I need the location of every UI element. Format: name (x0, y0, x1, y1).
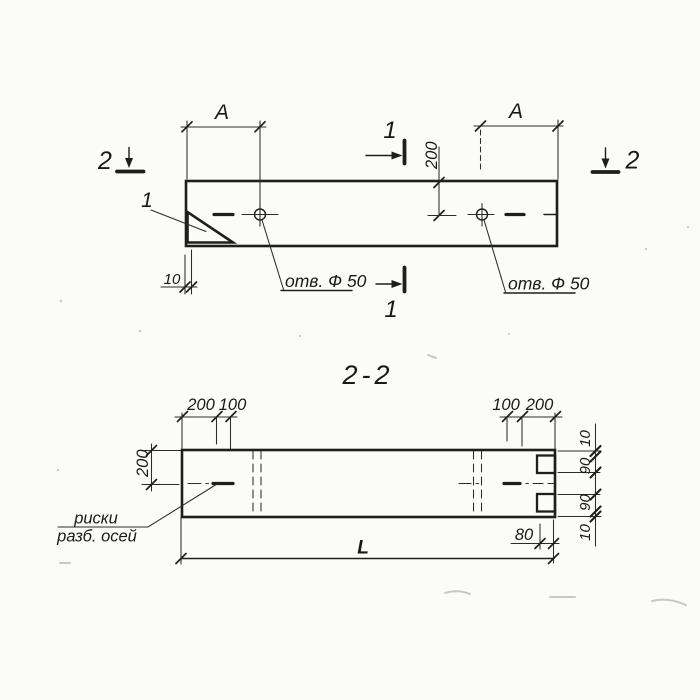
marker-1-bottom-label: 1 (384, 296, 397, 323)
dim-a-left-label: A (213, 101, 229, 124)
arrow-right-icon (392, 280, 403, 288)
dim-notch-top-label: 90 (577, 457, 594, 474)
dim-hole-offset-label: 200 (423, 141, 441, 170)
dim-notch-depth-label: 80 (515, 526, 534, 544)
section-view: 2-2 200 100 100 200 (56, 360, 601, 564)
axis-note-line2: разб. осей (56, 528, 137, 546)
dim-notch-depth: 80 (511, 520, 559, 563)
dim-top-left: 200 100 (175, 396, 247, 449)
technical-drawing: A A 200 1 1 (0, 0, 700, 700)
hole-right (468, 204, 494, 227)
drawing-sheet: A A 200 1 1 (0, 0, 700, 700)
dim-top-right: 100 200 (492, 396, 562, 449)
plan-view: A A 200 1 1 (97, 100, 640, 323)
dim-plate-label: 10 (164, 271, 181, 288)
dim-length-label: L (357, 538, 369, 559)
dim-tl-200: 200 (186, 396, 215, 414)
hole-label-left: отв. Ф 50 (262, 220, 367, 291)
section-marker-2-right: 2 (593, 147, 640, 175)
dim-plate-thickness: 10 (161, 250, 197, 294)
detail-callout-1: 1 (141, 189, 206, 232)
hidden-hole-lines (253, 451, 482, 516)
dim-tr-200: 200 (525, 396, 554, 414)
scan-noise (57, 226, 689, 605)
dim-depth-label: 200 (134, 449, 152, 478)
hole-label-right: отв. Ф 50 (484, 220, 590, 294)
marker-2-left-label: 2 (97, 147, 112, 175)
end-notch-top (537, 456, 555, 474)
dim-a-right: A (474, 100, 563, 179)
section-outline (182, 450, 555, 517)
marker-1-top-label: 1 (383, 117, 396, 144)
arrow-down-icon (125, 158, 133, 168)
arrow-down-icon (602, 159, 610, 169)
end-notch-bottom (537, 494, 555, 512)
section-marker-1-top: 1 (366, 117, 405, 164)
axis-note-line1: риски (73, 510, 118, 528)
dim-chain-right: 10 90 90 10 (558, 424, 601, 546)
dim-edge-bottom-label: 10 (577, 524, 594, 541)
dim-edge-top-label: 10 (577, 430, 594, 447)
section-title: 2-2 (341, 360, 393, 390)
dim-notch-bottom-label: 90 (577, 494, 594, 511)
dim-a-right-label: A (507, 100, 523, 123)
dim-tr-100: 100 (492, 396, 520, 414)
detail-callout-label: 1 (141, 189, 153, 212)
section-marker-1-bottom: 1 (376, 268, 405, 324)
dim-tl-100: 100 (219, 396, 247, 414)
hole-right-text: отв. Ф 50 (508, 274, 590, 294)
axis-note: риски разб. осей (56, 484, 217, 546)
dim-depth-left: 200 (134, 444, 181, 491)
dim-length: L (176, 517, 559, 564)
plan-beam-outline (186, 181, 557, 246)
hole-left-text: отв. Ф 50 (285, 271, 367, 291)
section-marker-2-left: 2 (97, 147, 143, 175)
dim-a-left: A (181, 101, 266, 226)
arrow-right-icon (392, 152, 403, 160)
marker-2-right-label: 2 (625, 147, 640, 175)
